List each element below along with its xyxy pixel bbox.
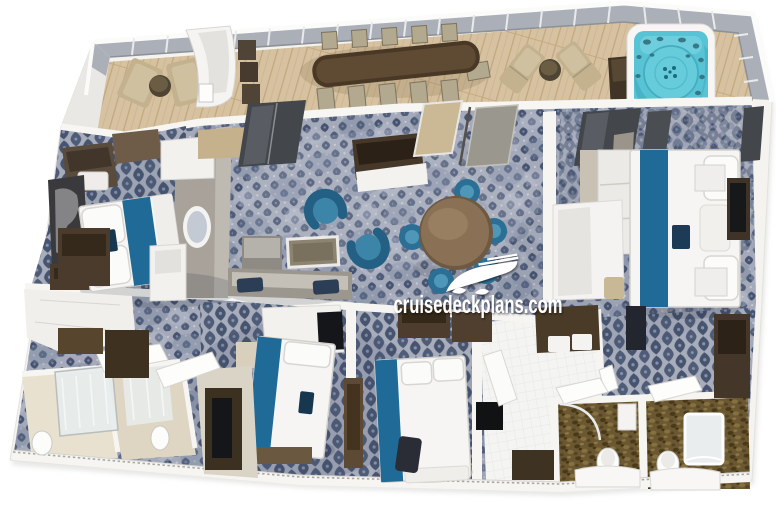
svg-text:cruisedeckplans.com: cruisedeckplans.com <box>394 291 563 319</box>
